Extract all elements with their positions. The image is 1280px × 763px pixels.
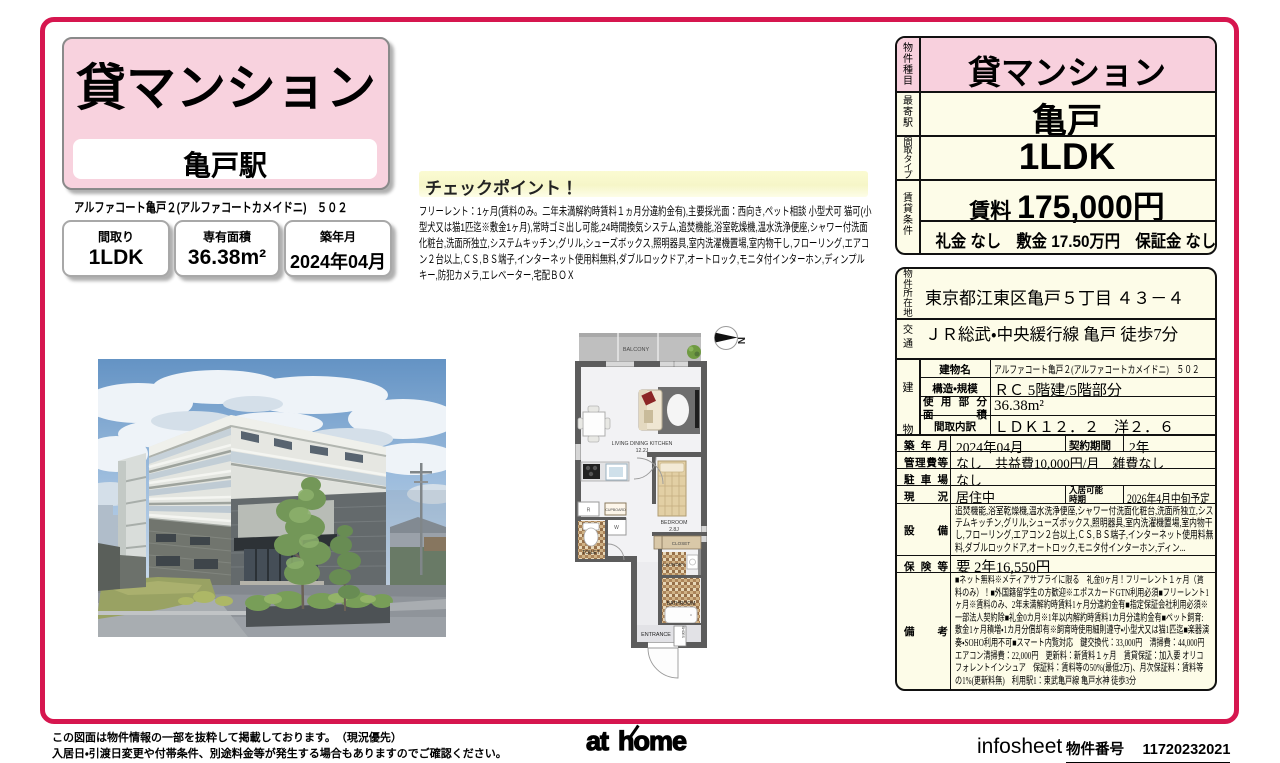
svg-text:N: N [735, 337, 746, 344]
svg-text:TOILET: TOILET [582, 550, 599, 556]
svg-text:BEDROOM: BEDROOM [661, 520, 688, 526]
svg-text:BALCONY: BALCONY [623, 347, 650, 353]
svg-text:SHOES: SHOES [681, 626, 685, 639]
svg-text:LAUNDRY: LAUNDRY [663, 562, 685, 567]
svg-text:W: W [614, 525, 619, 531]
svg-text:12.2J: 12.2J [636, 448, 649, 454]
svg-text:LIVING DINING KITCHEN: LIVING DINING KITCHEN [612, 441, 673, 447]
svg-text:ENTRANCE: ENTRANCE [641, 632, 671, 638]
svg-text:R: R [587, 508, 591, 514]
svg-text:CUPBOARD: CUPBOARD [605, 508, 626, 512]
svg-text:CLOSET: CLOSET [672, 541, 691, 546]
svg-text:BATHROOM: BATHROOM [667, 601, 696, 607]
